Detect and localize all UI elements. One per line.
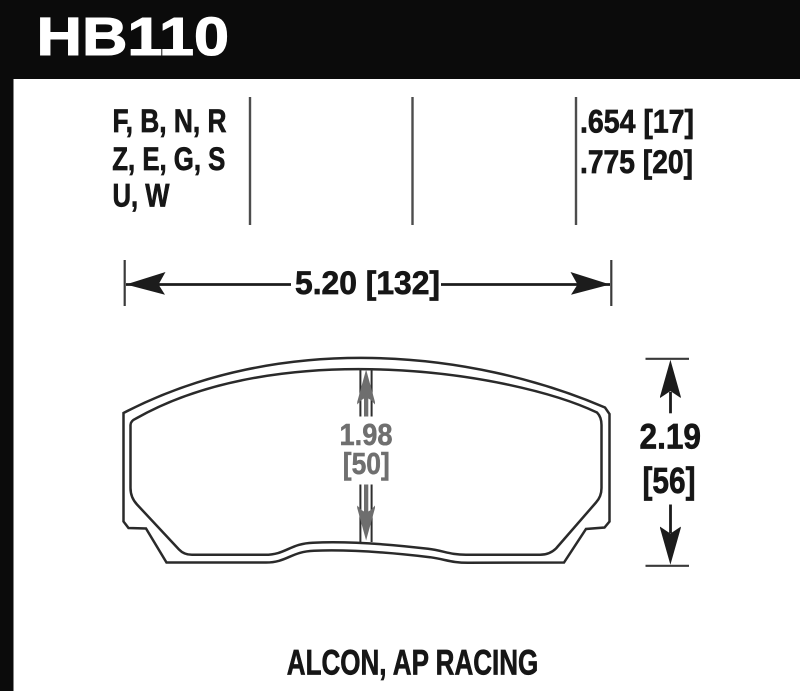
svg-text:ALCON, AP RACING: ALCON, AP RACING — [287, 643, 539, 683]
svg-text:[50]: [50] — [343, 447, 390, 481]
svg-text:5.20 [132]: 5.20 [132] — [295, 265, 440, 301]
svg-text:F, B, N, R: F, B, N, R — [113, 103, 227, 139]
svg-text:.654 [17]: .654 [17] — [580, 104, 694, 140]
svg-text:Z, E, G, S: Z, E, G, S — [112, 141, 225, 177]
svg-text:U, W: U, W — [113, 178, 171, 214]
svg-text:HB110: HB110 — [37, 8, 230, 67]
svg-text:2.19: 2.19 — [640, 418, 702, 457]
svg-text:.775 [20]: .775 [20] — [580, 144, 693, 180]
svg-text:[56]: [56] — [643, 460, 696, 501]
